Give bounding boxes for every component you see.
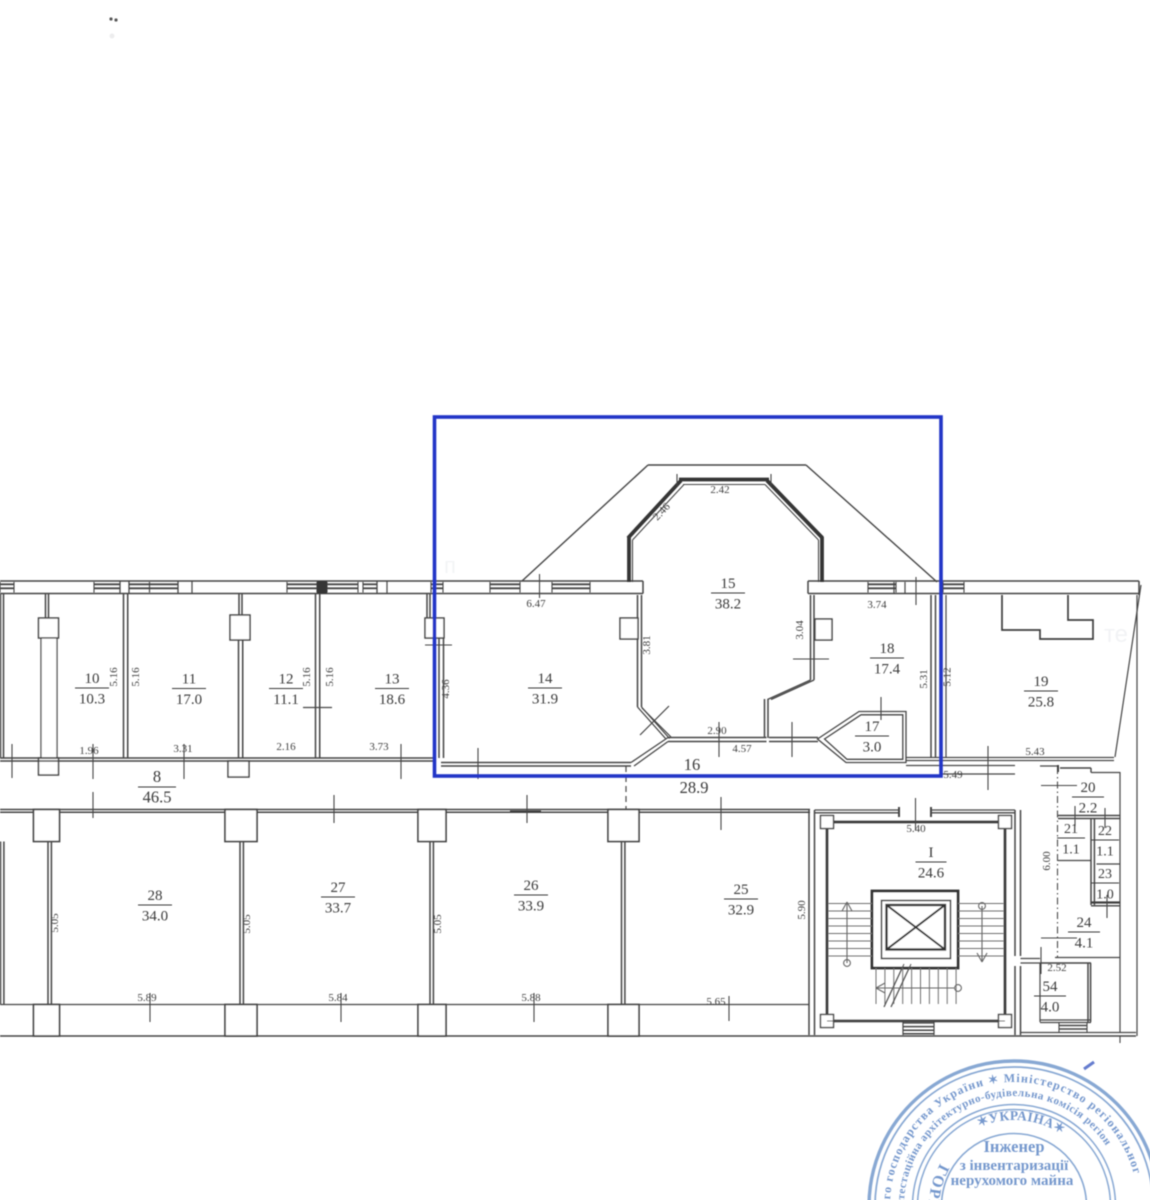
svg-text:20: 20: [1081, 780, 1096, 796]
svg-text:5.05: 5.05: [432, 914, 444, 934]
svg-text:31.9: 31.9: [532, 692, 558, 708]
svg-text:18.6: 18.6: [379, 692, 406, 708]
svg-text:1.1: 1.1: [1096, 845, 1114, 860]
svg-text:5.40: 5.40: [906, 823, 926, 835]
svg-text:6.00: 6.00: [1041, 851, 1053, 871]
svg-text:17: 17: [865, 719, 881, 735]
svg-text:3.74: 3.74: [867, 599, 887, 611]
svg-text:23: 23: [1098, 867, 1112, 882]
svg-text:з інвентаризації: з інвентаризації: [960, 1158, 1069, 1174]
svg-text:5.88: 5.88: [521, 992, 541, 1004]
svg-text:27: 27: [331, 880, 347, 896]
svg-text:54: 54: [1043, 979, 1059, 995]
svg-text:5.65: 5.65: [706, 996, 726, 1008]
svg-text:2.90: 2.90: [707, 725, 727, 737]
svg-text:3.31: 3.31: [173, 743, 192, 755]
svg-text:16: 16: [684, 755, 701, 774]
svg-text:2.52: 2.52: [1047, 962, 1066, 974]
svg-text:11: 11: [182, 672, 196, 688]
svg-text:I: I: [929, 845, 934, 861]
svg-text:5.16: 5.16: [108, 667, 120, 687]
svg-text:25: 25: [734, 882, 749, 898]
svg-text:5.16: 5.16: [324, 667, 336, 687]
svg-text:5.49: 5.49: [943, 769, 963, 781]
svg-text:1.1: 1.1: [1062, 843, 1080, 858]
svg-text:24: 24: [1077, 915, 1093, 931]
svg-text:5.05: 5.05: [49, 913, 61, 933]
svg-text:19: 19: [1034, 674, 1049, 690]
svg-text:26: 26: [524, 878, 540, 894]
svg-text:4.57: 4.57: [732, 743, 752, 755]
svg-text:32.9: 32.9: [728, 903, 754, 919]
svg-text:17.4: 17.4: [874, 662, 901, 678]
svg-text:3.73: 3.73: [369, 741, 389, 753]
svg-text:38.2: 38.2: [715, 597, 741, 613]
svg-text:10.3: 10.3: [79, 692, 105, 708]
svg-text:6.47: 6.47: [526, 598, 546, 610]
svg-text:4.36: 4.36: [440, 679, 452, 699]
svg-text:13: 13: [385, 672, 400, 688]
svg-text:1.0: 1.0: [1096, 888, 1114, 903]
svg-text:2.42: 2.42: [710, 484, 729, 496]
svg-text:28.9: 28.9: [680, 778, 709, 797]
svg-text:18: 18: [880, 641, 895, 657]
svg-text:4.0: 4.0: [1041, 1000, 1060, 1016]
svg-text:10: 10: [85, 671, 100, 687]
svg-text:15: 15: [721, 576, 736, 592]
svg-text:5.89: 5.89: [137, 992, 157, 1004]
svg-text:12: 12: [279, 672, 294, 688]
svg-text:8: 8: [153, 767, 161, 786]
svg-text:5.90: 5.90: [796, 900, 808, 920]
svg-text:21: 21: [1064, 822, 1078, 837]
svg-text:5.16: 5.16: [130, 667, 142, 687]
svg-text:14: 14: [538, 671, 554, 687]
svg-text:5.31: 5.31: [918, 669, 930, 688]
svg-text:2.2: 2.2: [1079, 801, 1098, 817]
svg-text:24.6: 24.6: [918, 866, 945, 882]
svg-text:11.1: 11.1: [273, 692, 299, 708]
svg-text:п: п: [444, 553, 456, 578]
svg-text:3.0: 3.0: [863, 740, 882, 756]
svg-text:33.9: 33.9: [518, 899, 544, 915]
svg-text:3.81: 3.81: [641, 635, 653, 654]
svg-text:2.46: 2.46: [651, 500, 673, 523]
svg-text:22: 22: [1098, 824, 1112, 839]
svg-text:4.1: 4.1: [1075, 936, 1094, 952]
svg-text:5.43: 5.43: [1025, 746, 1045, 758]
svg-text:5.05: 5.05: [241, 914, 253, 934]
svg-text:нерухомого майна: нерухомого майна: [951, 1173, 1074, 1189]
svg-text:1.96: 1.96: [79, 745, 99, 757]
svg-text:те: те: [1104, 621, 1128, 648]
svg-text:17.0: 17.0: [176, 692, 202, 708]
svg-text:Інженер: Інженер: [983, 1137, 1044, 1156]
svg-text:34.0: 34.0: [142, 909, 168, 925]
svg-text:2.16: 2.16: [276, 741, 296, 753]
svg-text:5.12: 5.12: [942, 667, 954, 686]
svg-text:28: 28: [148, 888, 163, 904]
svg-text:3.04: 3.04: [794, 620, 806, 640]
svg-text:5.84: 5.84: [328, 992, 348, 1004]
svg-text:33.7: 33.7: [325, 901, 352, 917]
svg-text:25.8: 25.8: [1028, 695, 1054, 711]
svg-text:5.16: 5.16: [301, 667, 313, 687]
svg-text:46.5: 46.5: [143, 788, 172, 807]
